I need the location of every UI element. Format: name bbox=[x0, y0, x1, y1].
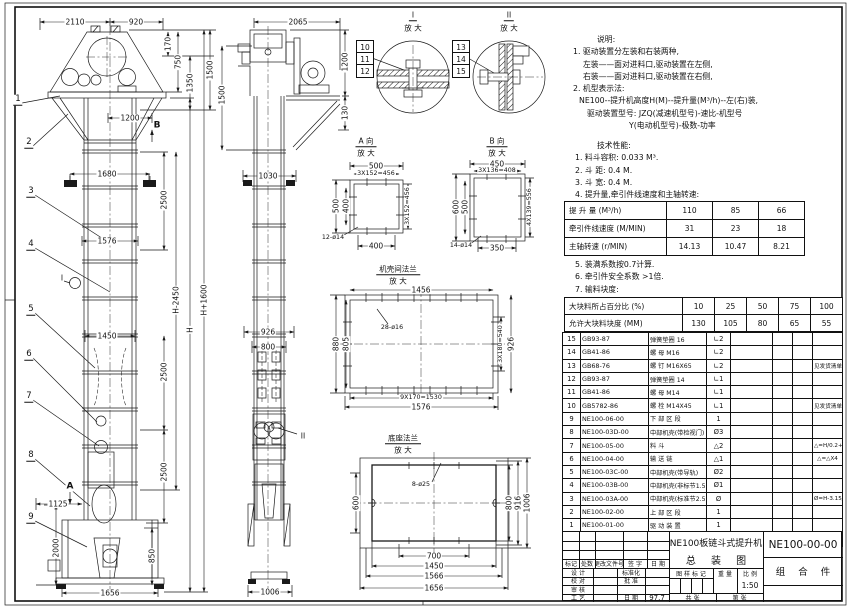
part-qty: Ø1 bbox=[707, 479, 731, 492]
part-name: 上 部 区 段 bbox=[649, 505, 707, 518]
note-line: Y(电动机型号)-极数-功率 bbox=[565, 120, 758, 132]
part-remark: △=△X4 bbox=[813, 452, 843, 465]
table-row: 11GB41-86螺 母 M14∟1 bbox=[563, 386, 843, 399]
part-qty: △1 bbox=[707, 452, 731, 465]
part-remark bbox=[813, 412, 843, 425]
tech-line: 6. 牵引件安全系数 >1倍. bbox=[565, 271, 664, 283]
balloon-12: 12 bbox=[356, 64, 374, 78]
part-qty: ∟2 bbox=[707, 333, 731, 346]
view-b-title: B 向 bbox=[486, 137, 507, 147]
part-qty: 1 bbox=[707, 412, 731, 425]
view-b-subtitle: 放 大 bbox=[487, 149, 506, 157]
role-label bbox=[617, 585, 645, 594]
part-total-weight bbox=[793, 386, 813, 399]
marker-b: B bbox=[153, 122, 162, 131]
dim-front-1125: 1125 bbox=[47, 500, 68, 508]
part-material bbox=[731, 426, 773, 439]
part-material bbox=[731, 439, 773, 452]
dim-base-1656: 1656 bbox=[423, 584, 444, 592]
lump-value: 25 bbox=[715, 298, 747, 315]
part-total-weight bbox=[793, 479, 813, 492]
tech-line: 4. 提升量,牵引件线速度和主轴转速: bbox=[565, 189, 699, 201]
dim-base-700: 700 bbox=[426, 552, 442, 560]
performance-table: 提 升 量 (M³/h) 110 85 66 牵引件线速度 (M/MIN) 31… bbox=[564, 201, 805, 256]
part-name: 中部机壳(带检视门) bbox=[649, 426, 707, 439]
part-name: 驱 动 装 置 bbox=[649, 519, 707, 532]
part-qty: ∟1 bbox=[707, 399, 731, 412]
dim-side-1200: 1200 bbox=[341, 51, 349, 72]
role-label: 审 核 bbox=[563, 585, 593, 594]
part-qty: Ø3 bbox=[707, 426, 731, 439]
base-subtitle: 放 大 bbox=[393, 446, 412, 454]
dim-b-408: 3X136=408 bbox=[477, 168, 517, 174]
detail-i-title: I bbox=[409, 11, 417, 21]
dim-front-h: H bbox=[186, 326, 194, 334]
rev-header: 签 字 bbox=[623, 559, 647, 568]
drawing-date: 97.7 bbox=[645, 594, 669, 603]
part-remark bbox=[813, 519, 843, 532]
scale-value: 1:50 bbox=[737, 578, 763, 593]
part-qty: ∟2 bbox=[707, 346, 731, 359]
lump-value: 10 bbox=[683, 298, 715, 315]
part-unit-weight bbox=[773, 412, 793, 425]
part-code: GB5782-86 bbox=[581, 399, 649, 412]
part-total-weight bbox=[793, 465, 813, 478]
part-name: 螺 钉 M16X65 bbox=[649, 359, 707, 372]
drawing-title-line1: NE100板链斗式提升机 bbox=[669, 534, 763, 550]
part-material bbox=[731, 519, 773, 532]
part-unit-weight bbox=[773, 505, 793, 518]
role-value bbox=[645, 585, 669, 594]
part-material bbox=[731, 479, 773, 492]
tech-line: 7. 输料块度: bbox=[565, 284, 664, 296]
dim-b-556: 4X139=556 bbox=[527, 187, 533, 227]
part-name: 螺 母 M16 bbox=[649, 346, 707, 359]
sheet-total-label: 共 张 bbox=[669, 593, 716, 602]
dim-side-926: 926 bbox=[260, 328, 276, 336]
part-code: NE100-03D-00 bbox=[581, 426, 649, 439]
part-unit-weight bbox=[773, 346, 793, 359]
rev-header: 日 期 bbox=[647, 559, 669, 568]
dim-base-916: 916 bbox=[514, 495, 522, 511]
lump-value: 50 bbox=[747, 298, 779, 315]
dim-flange-holes: 28-ø16 bbox=[380, 325, 404, 331]
part-remark bbox=[813, 333, 843, 346]
part-code: GB41-86 bbox=[581, 346, 649, 359]
part-total-weight bbox=[793, 372, 813, 385]
part-code: NE100-01-00 bbox=[581, 519, 649, 532]
dim-side-1030: 1030 bbox=[257, 172, 278, 180]
dim-b-600: 600 bbox=[452, 199, 460, 215]
part-no: 7 bbox=[563, 439, 581, 452]
dim-side-2065: 2065 bbox=[287, 18, 308, 26]
part-no: 8 bbox=[563, 426, 581, 439]
part-unit-weight bbox=[773, 519, 793, 532]
dim-flange-805: 805 bbox=[342, 336, 350, 352]
part-no: 4 bbox=[563, 479, 581, 492]
part-no: 10 bbox=[563, 399, 581, 412]
dim-front-1500: 1500 bbox=[206, 59, 214, 80]
part-no: 13 bbox=[563, 359, 581, 372]
title-block: 标记 处数 更改文件号 签 字 日 期 设 计 校 对 审 核 工 艺 标准化 … bbox=[562, 531, 842, 601]
table-row: 8NE100-03D-00中部机壳(带检视门)Ø3 bbox=[563, 426, 843, 439]
part-material bbox=[731, 412, 773, 425]
dim-side-1500: 1500 bbox=[218, 84, 226, 105]
table-row: 14GB41-86螺 母 M16∟2 bbox=[563, 346, 843, 359]
dim-flange-880: 880 bbox=[332, 336, 340, 352]
flange-subtitle: 放 大 bbox=[388, 277, 407, 285]
perf-value: 85 bbox=[713, 202, 759, 220]
part-unit-weight bbox=[773, 359, 793, 372]
role-label: 标准化 bbox=[617, 568, 645, 577]
dim-side-1006: 1006 bbox=[259, 588, 280, 596]
perf-value: 31 bbox=[667, 220, 713, 238]
tech-block-2: 5. 装满系数按0.7计算. 6. 牵引件安全系数 >1倍. 7. 输料块度: bbox=[565, 259, 664, 296]
dim-front-750: 750 bbox=[174, 54, 182, 70]
part-total-weight bbox=[793, 492, 813, 505]
dim-flange-540: 3X180=540 bbox=[498, 324, 504, 364]
dim-b-holes: 14-ø14 bbox=[449, 243, 473, 249]
part-remark bbox=[813, 505, 843, 518]
marker-ii: II bbox=[300, 432, 306, 440]
dim-flange-1456: 1456 bbox=[410, 286, 431, 294]
dim-base-600: 600 bbox=[352, 495, 360, 511]
balloon-4: 4 bbox=[26, 240, 35, 251]
part-total-weight bbox=[793, 519, 813, 532]
rev-header: 处数 bbox=[579, 559, 595, 568]
dim-side-130: 130 bbox=[341, 105, 349, 121]
flange-title: 机壳间法兰 bbox=[376, 265, 420, 275]
detail-ii-subtitle: 放 大 bbox=[499, 24, 518, 32]
lump-value: 75 bbox=[779, 298, 811, 315]
part-code: NE100-05-00 bbox=[581, 439, 649, 452]
lump-row-label: 大块料所占百分比 (%) bbox=[565, 298, 683, 315]
table-row: 12GB93-87弹簧垫圈 14∟1 bbox=[563, 372, 843, 385]
dim-front-2500b: 2500 bbox=[160, 361, 168, 382]
parts-list: 15GB93-87弹簧垫圈 16∟2 14GB41-86螺 母 M16∟2 13… bbox=[562, 332, 843, 547]
table-row: 4NE100-03B-00中部机壳(非标节1.5M,1M)Ø1 bbox=[563, 479, 843, 492]
table-row: 7NE100-05-00料 斗△2△=H/0.2+5.75 bbox=[563, 439, 843, 452]
dim-base-1006: 1006 bbox=[523, 492, 531, 513]
part-code: GB68-76 bbox=[581, 359, 649, 372]
dim-front-2500c: 2500 bbox=[160, 461, 168, 482]
dim-b-350: 350 bbox=[489, 244, 505, 252]
part-total-weight bbox=[793, 426, 813, 439]
table-row: 5NE100-03C-00中部机壳(带导轨)Ø2 bbox=[563, 465, 843, 478]
role-label: 设 计 bbox=[563, 568, 593, 577]
part-unit-weight bbox=[773, 479, 793, 492]
part-name: 料 斗 bbox=[649, 439, 707, 452]
perf-row-label: 牵引件线速度 (M/MIN) bbox=[565, 220, 667, 238]
part-material bbox=[731, 386, 773, 399]
part-unit-weight bbox=[773, 333, 793, 346]
tech-heading: 技术性能: bbox=[565, 140, 699, 152]
part-remark: 见发货清单 bbox=[813, 399, 843, 412]
perf-value: 8.21 bbox=[759, 238, 805, 256]
table-row: 13GB68-76螺 钉 M16X65∟2见发货清单 bbox=[563, 359, 843, 372]
dim-front-1656: 1656 bbox=[99, 589, 120, 597]
part-qty: Ø2 bbox=[707, 465, 731, 478]
sheet-no-label: 第 张 bbox=[716, 593, 763, 602]
table-row: 1NE100-01-00驱 动 装 置1 bbox=[563, 519, 843, 532]
weight-label: 重 量 bbox=[713, 568, 737, 578]
lump-value: 65 bbox=[779, 315, 811, 332]
part-code: GB41-86 bbox=[581, 386, 649, 399]
part-total-weight bbox=[793, 359, 813, 372]
part-qty: ∟1 bbox=[707, 372, 731, 385]
part-qty: △2 bbox=[707, 439, 731, 452]
perf-row-label: 主轴转速 (r/MIN) bbox=[565, 238, 667, 256]
part-code: NE100-04-00 bbox=[581, 452, 649, 465]
tech-line: 2. 斗 距: 0.4 M. bbox=[565, 165, 699, 177]
tech-line: 5. 装满系数按0.7计算. bbox=[565, 259, 664, 271]
table-row: 10GB5782-86螺 栓 M14X45∟1见发货清单 bbox=[563, 399, 843, 412]
part-no: 6 bbox=[563, 452, 581, 465]
role-label: 日 期 bbox=[617, 594, 645, 603]
dim-front-h1600: H+1600 bbox=[200, 283, 208, 316]
dim-b-500: 500 bbox=[461, 199, 469, 215]
part-no: 12 bbox=[563, 372, 581, 385]
perf-value: 18 bbox=[759, 220, 805, 238]
part-unit-weight bbox=[773, 452, 793, 465]
part-code: NE100-02-00 bbox=[581, 505, 649, 518]
part-name: 中部机壳(非标节1.5M,1M) bbox=[649, 479, 707, 492]
part-remark bbox=[813, 372, 843, 385]
table-row: 15GB93-87弹簧垫圈 16∟2 bbox=[563, 333, 843, 346]
assembly-type-label: 组 合 件 bbox=[763, 557, 843, 585]
dim-flange-926: 926 bbox=[507, 336, 515, 352]
dim-side-800: 800 bbox=[260, 343, 276, 351]
dim-front-2500a: 2500 bbox=[160, 189, 168, 210]
note-line: 左装——面对进料口,驱动装置在左侧, bbox=[565, 59, 758, 71]
part-no: 9 bbox=[563, 412, 581, 425]
part-unit-weight bbox=[773, 439, 793, 452]
lump-value: 55 bbox=[811, 315, 843, 332]
balloon-5: 5 bbox=[26, 305, 35, 316]
dim-a-500-left: 500 bbox=[332, 198, 340, 214]
perf-value: 14.13 bbox=[667, 238, 713, 256]
balloon-6: 6 bbox=[24, 350, 33, 361]
marker-a: A bbox=[66, 483, 75, 492]
scale-label: 比 例 bbox=[737, 568, 763, 578]
role-value bbox=[645, 577, 669, 586]
part-no: 1 bbox=[563, 519, 581, 532]
part-qty: ∟2 bbox=[707, 359, 731, 372]
part-material bbox=[731, 372, 773, 385]
dim-a-holes: 12-ø14 bbox=[321, 235, 345, 241]
part-code: NE100-03B-00 bbox=[581, 479, 649, 492]
part-material bbox=[731, 465, 773, 478]
perf-value: 110 bbox=[667, 202, 713, 220]
part-material bbox=[731, 333, 773, 346]
part-remark bbox=[813, 465, 843, 478]
note-line: 驱动装置型号: JZQ(减速机型号)-速比-机型号 bbox=[565, 108, 758, 120]
balloon-15: 15 bbox=[452, 64, 470, 78]
table-row: 2NE100-02-00上 部 区 段1 bbox=[563, 505, 843, 518]
drawing-number: NE100-00-00 bbox=[763, 532, 843, 557]
part-no: 14 bbox=[563, 346, 581, 359]
part-no: 5 bbox=[563, 465, 581, 478]
rev-header: 更改文件号 bbox=[595, 559, 623, 568]
base-title: 底座法兰 bbox=[385, 434, 421, 444]
dim-front-850: 850 bbox=[148, 548, 156, 564]
notes-block: 说明: 1. 驱动装置分左装和右装两种, 左装——面对进料口,驱动装置在左侧, … bbox=[565, 34, 758, 132]
part-material bbox=[731, 492, 773, 505]
part-total-weight bbox=[793, 412, 813, 425]
part-no: 11 bbox=[563, 386, 581, 399]
balloon-8: 8 bbox=[26, 451, 35, 462]
part-total-weight bbox=[793, 346, 813, 359]
part-unit-weight bbox=[773, 386, 793, 399]
part-total-weight bbox=[793, 505, 813, 518]
dim-front-170: 170 bbox=[164, 36, 172, 52]
part-remark: △=H/0.2+5.75 bbox=[813, 439, 843, 452]
part-total-weight bbox=[793, 452, 813, 465]
table-row: 6NE100-04-00输 送 链△1△=△X4 bbox=[563, 452, 843, 465]
dim-front-2110: 2110 bbox=[64, 18, 85, 26]
part-name: 中部机壳(带导轨) bbox=[649, 465, 707, 478]
part-no: 15 bbox=[563, 333, 581, 346]
part-remark bbox=[813, 346, 843, 359]
stamp-label: 图 样 标 记 bbox=[669, 568, 713, 578]
side-column bbox=[243, 96, 295, 520]
drawing-title-line2: 总 装 图 bbox=[669, 551, 763, 567]
dim-a-500-top: 500 bbox=[368, 162, 384, 170]
dim-flange-1530: 9X170=1530 bbox=[399, 395, 443, 401]
part-code: NE100-03C-00 bbox=[581, 465, 649, 478]
part-name: 中部机壳(标准节2.5M) bbox=[649, 492, 707, 505]
part-name: 下 部 区 段 bbox=[649, 412, 707, 425]
table-row: 9NE100-06-00下 部 区 段1 bbox=[563, 412, 843, 425]
part-name: 螺 母 M14 bbox=[649, 386, 707, 399]
dim-front-1576: 1576 bbox=[96, 237, 117, 245]
part-unit-weight bbox=[773, 426, 793, 439]
dim-base-1450: 1450 bbox=[423, 562, 444, 570]
lump-row-label: 允许大块料块度 (MM) bbox=[565, 315, 683, 332]
part-total-weight bbox=[793, 399, 813, 412]
part-qty: Ø bbox=[707, 492, 731, 505]
part-code: NE100-06-00 bbox=[581, 412, 649, 425]
part-name: 输 送 链 bbox=[649, 452, 707, 465]
front-head bbox=[48, 26, 166, 143]
detail-ii-title: II bbox=[504, 11, 514, 21]
rev-header: 标记 bbox=[563, 559, 579, 568]
part-name: 弹簧垫圈 14 bbox=[649, 372, 707, 385]
part-unit-weight bbox=[773, 492, 793, 505]
part-total-weight bbox=[793, 333, 813, 346]
notes-heading: 说明: bbox=[565, 34, 758, 46]
dim-front-1200: 1200 bbox=[119, 114, 140, 122]
part-material bbox=[731, 346, 773, 359]
lump-size-table: 大块料所占百分比 (%) 10 25 50 75 100 允许大块料块度 (MM… bbox=[564, 297, 843, 332]
dim-front-h2450: H-2450 bbox=[172, 285, 180, 314]
view-a-title: A 向 bbox=[355, 137, 376, 147]
dim-base-holes: 8-ø25 bbox=[411, 482, 431, 488]
view-a-subtitle: 放 大 bbox=[356, 149, 375, 157]
part-material bbox=[731, 399, 773, 412]
dim-flange-1576: 1576 bbox=[410, 403, 431, 411]
side-head bbox=[238, 30, 340, 150]
part-material bbox=[731, 505, 773, 518]
part-remark: 见发货清单 bbox=[813, 359, 843, 372]
table-row: 3NE100-03A-00中部机壳(标准节2.5M)ØØ=H-3.15/2.5 bbox=[563, 492, 843, 505]
balloon-9: 9 bbox=[26, 513, 35, 524]
part-remark bbox=[813, 426, 843, 439]
dim-base-1566: 1566 bbox=[423, 572, 444, 580]
perf-value: 66 bbox=[759, 202, 805, 220]
part-material bbox=[731, 452, 773, 465]
part-material bbox=[731, 359, 773, 372]
drawing-sheet: 2110 920 170 750 1350 1500 1200 1680 250… bbox=[0, 0, 850, 609]
lump-value: 105 bbox=[715, 315, 747, 332]
part-unit-weight bbox=[773, 399, 793, 412]
part-qty: 1 bbox=[707, 519, 731, 532]
part-unit-weight bbox=[773, 465, 793, 478]
balloon-1: 1 bbox=[13, 95, 22, 106]
dim-front-1450: 1450 bbox=[96, 332, 117, 340]
dim-front-2000: 2000 bbox=[52, 537, 60, 558]
balloon-3: 3 bbox=[26, 187, 35, 198]
role-label: 工 艺 bbox=[563, 594, 593, 603]
part-qty: ∟1 bbox=[707, 386, 731, 399]
perf-value: 23 bbox=[713, 220, 759, 238]
perf-value: 10.47 bbox=[713, 238, 759, 256]
note-line: 2. 机型表示法: bbox=[565, 83, 758, 95]
tech-line: 3. 斗 宽: 0.4 M. bbox=[565, 177, 699, 189]
part-remark bbox=[813, 386, 843, 399]
part-unit-weight bbox=[773, 372, 793, 385]
role-label: 校 对 bbox=[563, 577, 593, 586]
lump-value: 100 bbox=[811, 298, 843, 315]
dim-a-456-right: 3X152=456 bbox=[405, 186, 411, 226]
dim-front-1680: 1680 bbox=[96, 170, 117, 178]
balloon-2: 2 bbox=[24, 138, 33, 149]
lump-value: 80 bbox=[747, 315, 779, 332]
dim-a-400-left: 400 bbox=[342, 198, 350, 214]
role-value bbox=[645, 568, 669, 577]
dim-a-400-bottom: 400 bbox=[368, 242, 384, 250]
part-code: GB93-87 bbox=[581, 372, 649, 385]
marker-i: I bbox=[60, 274, 64, 282]
tech-line: 1. 料斗容积: 0.033 M³. bbox=[565, 152, 699, 164]
part-name: 弹簧垫圈 16 bbox=[649, 333, 707, 346]
part-total-weight bbox=[793, 439, 813, 452]
note-line: 右装——面对进料口,驱动装置在右侧, bbox=[565, 71, 758, 83]
tech-block: 技术性能: 1. 料斗容积: 0.033 M³. 2. 斗 距: 0.4 M. … bbox=[565, 140, 699, 201]
dim-front-920: 920 bbox=[128, 18, 144, 26]
part-code: GB93-87 bbox=[581, 333, 649, 346]
part-remark: Ø=H-3.15/2.5 bbox=[813, 492, 843, 505]
lump-value: 130 bbox=[683, 315, 715, 332]
part-name: 螺 栓 M14X45 bbox=[649, 399, 707, 412]
dim-front-1350: 1350 bbox=[186, 72, 194, 93]
detail-i-subtitle: 放 大 bbox=[403, 24, 422, 32]
part-no: 3 bbox=[563, 492, 581, 505]
part-qty: 1 bbox=[707, 505, 731, 518]
note-line: 1. 驱动装置分左装和右装两种, bbox=[565, 46, 758, 58]
perf-row-label: 提 升 量 (M³/h) bbox=[565, 202, 667, 220]
part-code: NE100-03A-00 bbox=[581, 492, 649, 505]
role-label: 批 准 bbox=[617, 577, 645, 586]
balloon-7: 7 bbox=[24, 392, 33, 403]
dim-base-800: 800 bbox=[505, 495, 513, 511]
note-line: NE100--提升机高度H(M)--提升量(M³/h)--左(右)装, bbox=[565, 95, 758, 107]
part-no: 2 bbox=[563, 505, 581, 518]
dim-a-456-top: 3X152=456 bbox=[356, 171, 396, 177]
part-remark bbox=[813, 479, 843, 492]
